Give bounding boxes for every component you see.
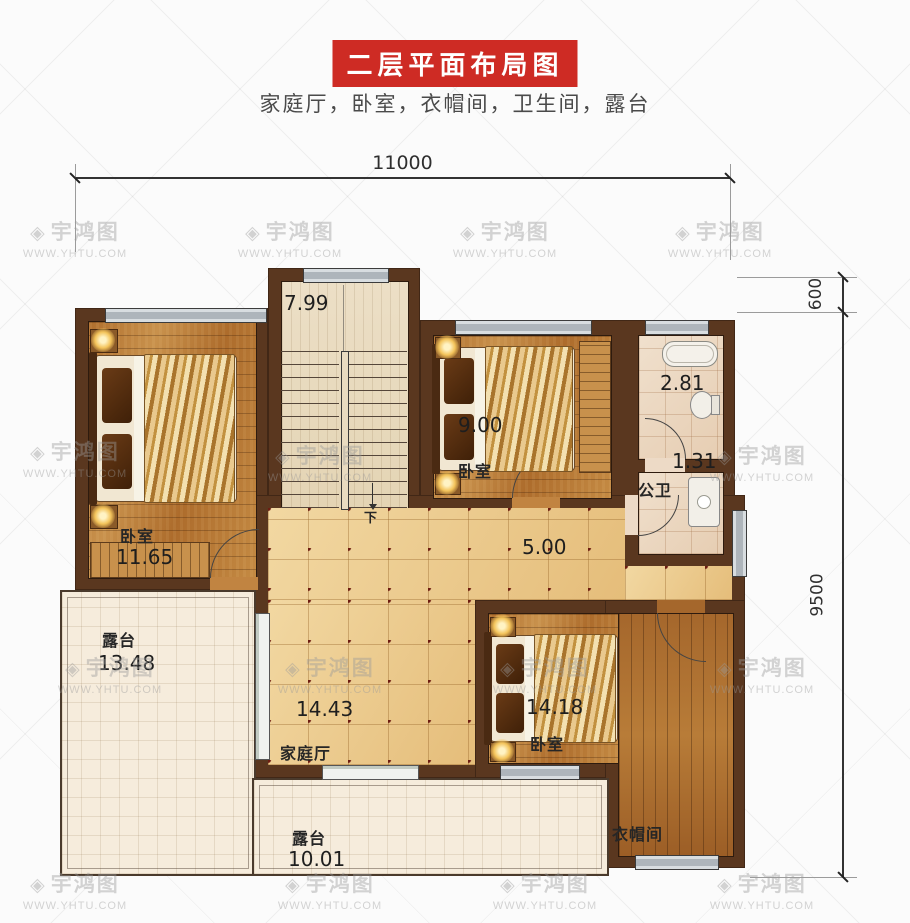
stair-down-label: 下 <box>364 507 378 526</box>
watermark: ◈宇鸿图WWW.YHTU.COM <box>238 216 342 260</box>
terrace-bottom-name: 露台 <box>292 825 326 849</box>
floor-hallway <box>268 508 625 600</box>
watermark-logo-icon: ◈ <box>460 223 477 244</box>
watermark: ◈宇鸿图WWW.YHTU.COM <box>453 216 557 260</box>
terrace-bottom-area: 10.01 <box>288 847 345 871</box>
bedroom-right-area: 14.18 <box>526 695 583 719</box>
window <box>635 855 719 870</box>
cloakroom-name: 衣帽间 <box>612 821 663 845</box>
pillow <box>102 368 133 423</box>
sink <box>688 477 720 527</box>
bed-sheet <box>525 636 534 741</box>
window <box>303 268 389 283</box>
family-hall-area: 14.43 <box>296 697 353 721</box>
bed-sheet <box>134 356 144 501</box>
pillow <box>496 693 524 733</box>
stair-flight <box>349 351 407 508</box>
stair-landing-line <box>343 285 344 351</box>
lamp-glow <box>435 335 459 359</box>
wardrobe <box>579 341 611 473</box>
bedroom-left-area: 11.65 <box>116 545 173 569</box>
bedroom-middle-name: 卧室 <box>458 458 492 482</box>
dimension-right-top-label: 600 <box>806 278 826 310</box>
public-toilet-name: 公卫 <box>638 477 672 501</box>
dimension-line-top <box>75 177 730 179</box>
floor-hallway <box>625 566 732 600</box>
terrace-left-area: 13.48 <box>98 651 155 675</box>
watermark-logo-icon: ◈ <box>675 223 692 244</box>
dimension-right-main-label: 9500 <box>808 573 828 616</box>
lamp-glow <box>435 471 459 495</box>
terrace-left-name: 露台 <box>102 627 136 651</box>
page-subtitle: 家庭厅，卧室，衣帽间，卫生间，露台 <box>0 88 910 118</box>
page-title: 二层平面布局图 <box>332 40 577 87</box>
window <box>455 320 592 335</box>
door-opening <box>210 577 258 590</box>
stair-rail <box>341 351 349 510</box>
watermark-logo-icon: ◈ <box>30 223 47 244</box>
watermark-logo-icon: ◈ <box>30 875 47 896</box>
lamp-glow <box>490 614 514 638</box>
bedroom-middle-area: 9.00 <box>458 413 503 437</box>
bed <box>95 355 237 502</box>
dimension-line-right <box>842 277 844 878</box>
floorplan-image: 二层平面布局图 家庭厅，卧室，衣帽间，卫生间，露台 11000 600 9500 <box>0 0 910 923</box>
bathroom-area: 2.81 <box>660 371 705 395</box>
sliding-door <box>322 765 419 780</box>
stair-flight <box>281 351 339 508</box>
pillow <box>496 644 524 684</box>
watermark-logo-icon: ◈ <box>30 443 47 464</box>
bedroom-right-name: 卧室 <box>530 731 564 755</box>
bathtub <box>662 341 718 367</box>
window <box>500 765 580 780</box>
window <box>732 510 747 577</box>
bed-sheet <box>475 348 484 470</box>
dimension-width-label: 11000 <box>75 152 730 174</box>
stairwell-area: 7.99 <box>284 291 329 315</box>
stair-down-arrow <box>372 483 373 505</box>
watermark: ◈宇鸿图WWW.YHTU.COM <box>668 216 772 260</box>
window <box>645 320 709 335</box>
lamp-glow <box>91 328 115 352</box>
family-hall-name: 家庭厅 <box>280 740 331 764</box>
bed-quilt <box>534 634 617 743</box>
terrace-left <box>60 590 256 876</box>
hallway-area: 5.00 <box>522 535 567 559</box>
window <box>105 308 267 323</box>
bed <box>490 635 618 742</box>
bedroom-left-name: 卧室 <box>120 523 154 547</box>
floor-plan: 7.99 下 卧室 11.65 9.00 卧室 2.81 1.31 公卫 5.0… <box>60 255 760 880</box>
public-toilet-area: 1.31 <box>672 449 717 473</box>
bed-quilt <box>144 354 236 503</box>
door-opening <box>512 497 560 508</box>
lamp-glow <box>490 739 514 763</box>
door-opening <box>625 495 638 535</box>
bed <box>438 347 575 471</box>
french-door <box>255 613 270 760</box>
toilet <box>690 391 714 419</box>
pillow <box>444 358 474 404</box>
lamp-glow <box>91 504 115 528</box>
bed-quilt <box>485 346 573 472</box>
door-opening <box>657 600 705 613</box>
watermark-logo-icon: ◈ <box>245 223 262 244</box>
pillow <box>102 434 133 489</box>
